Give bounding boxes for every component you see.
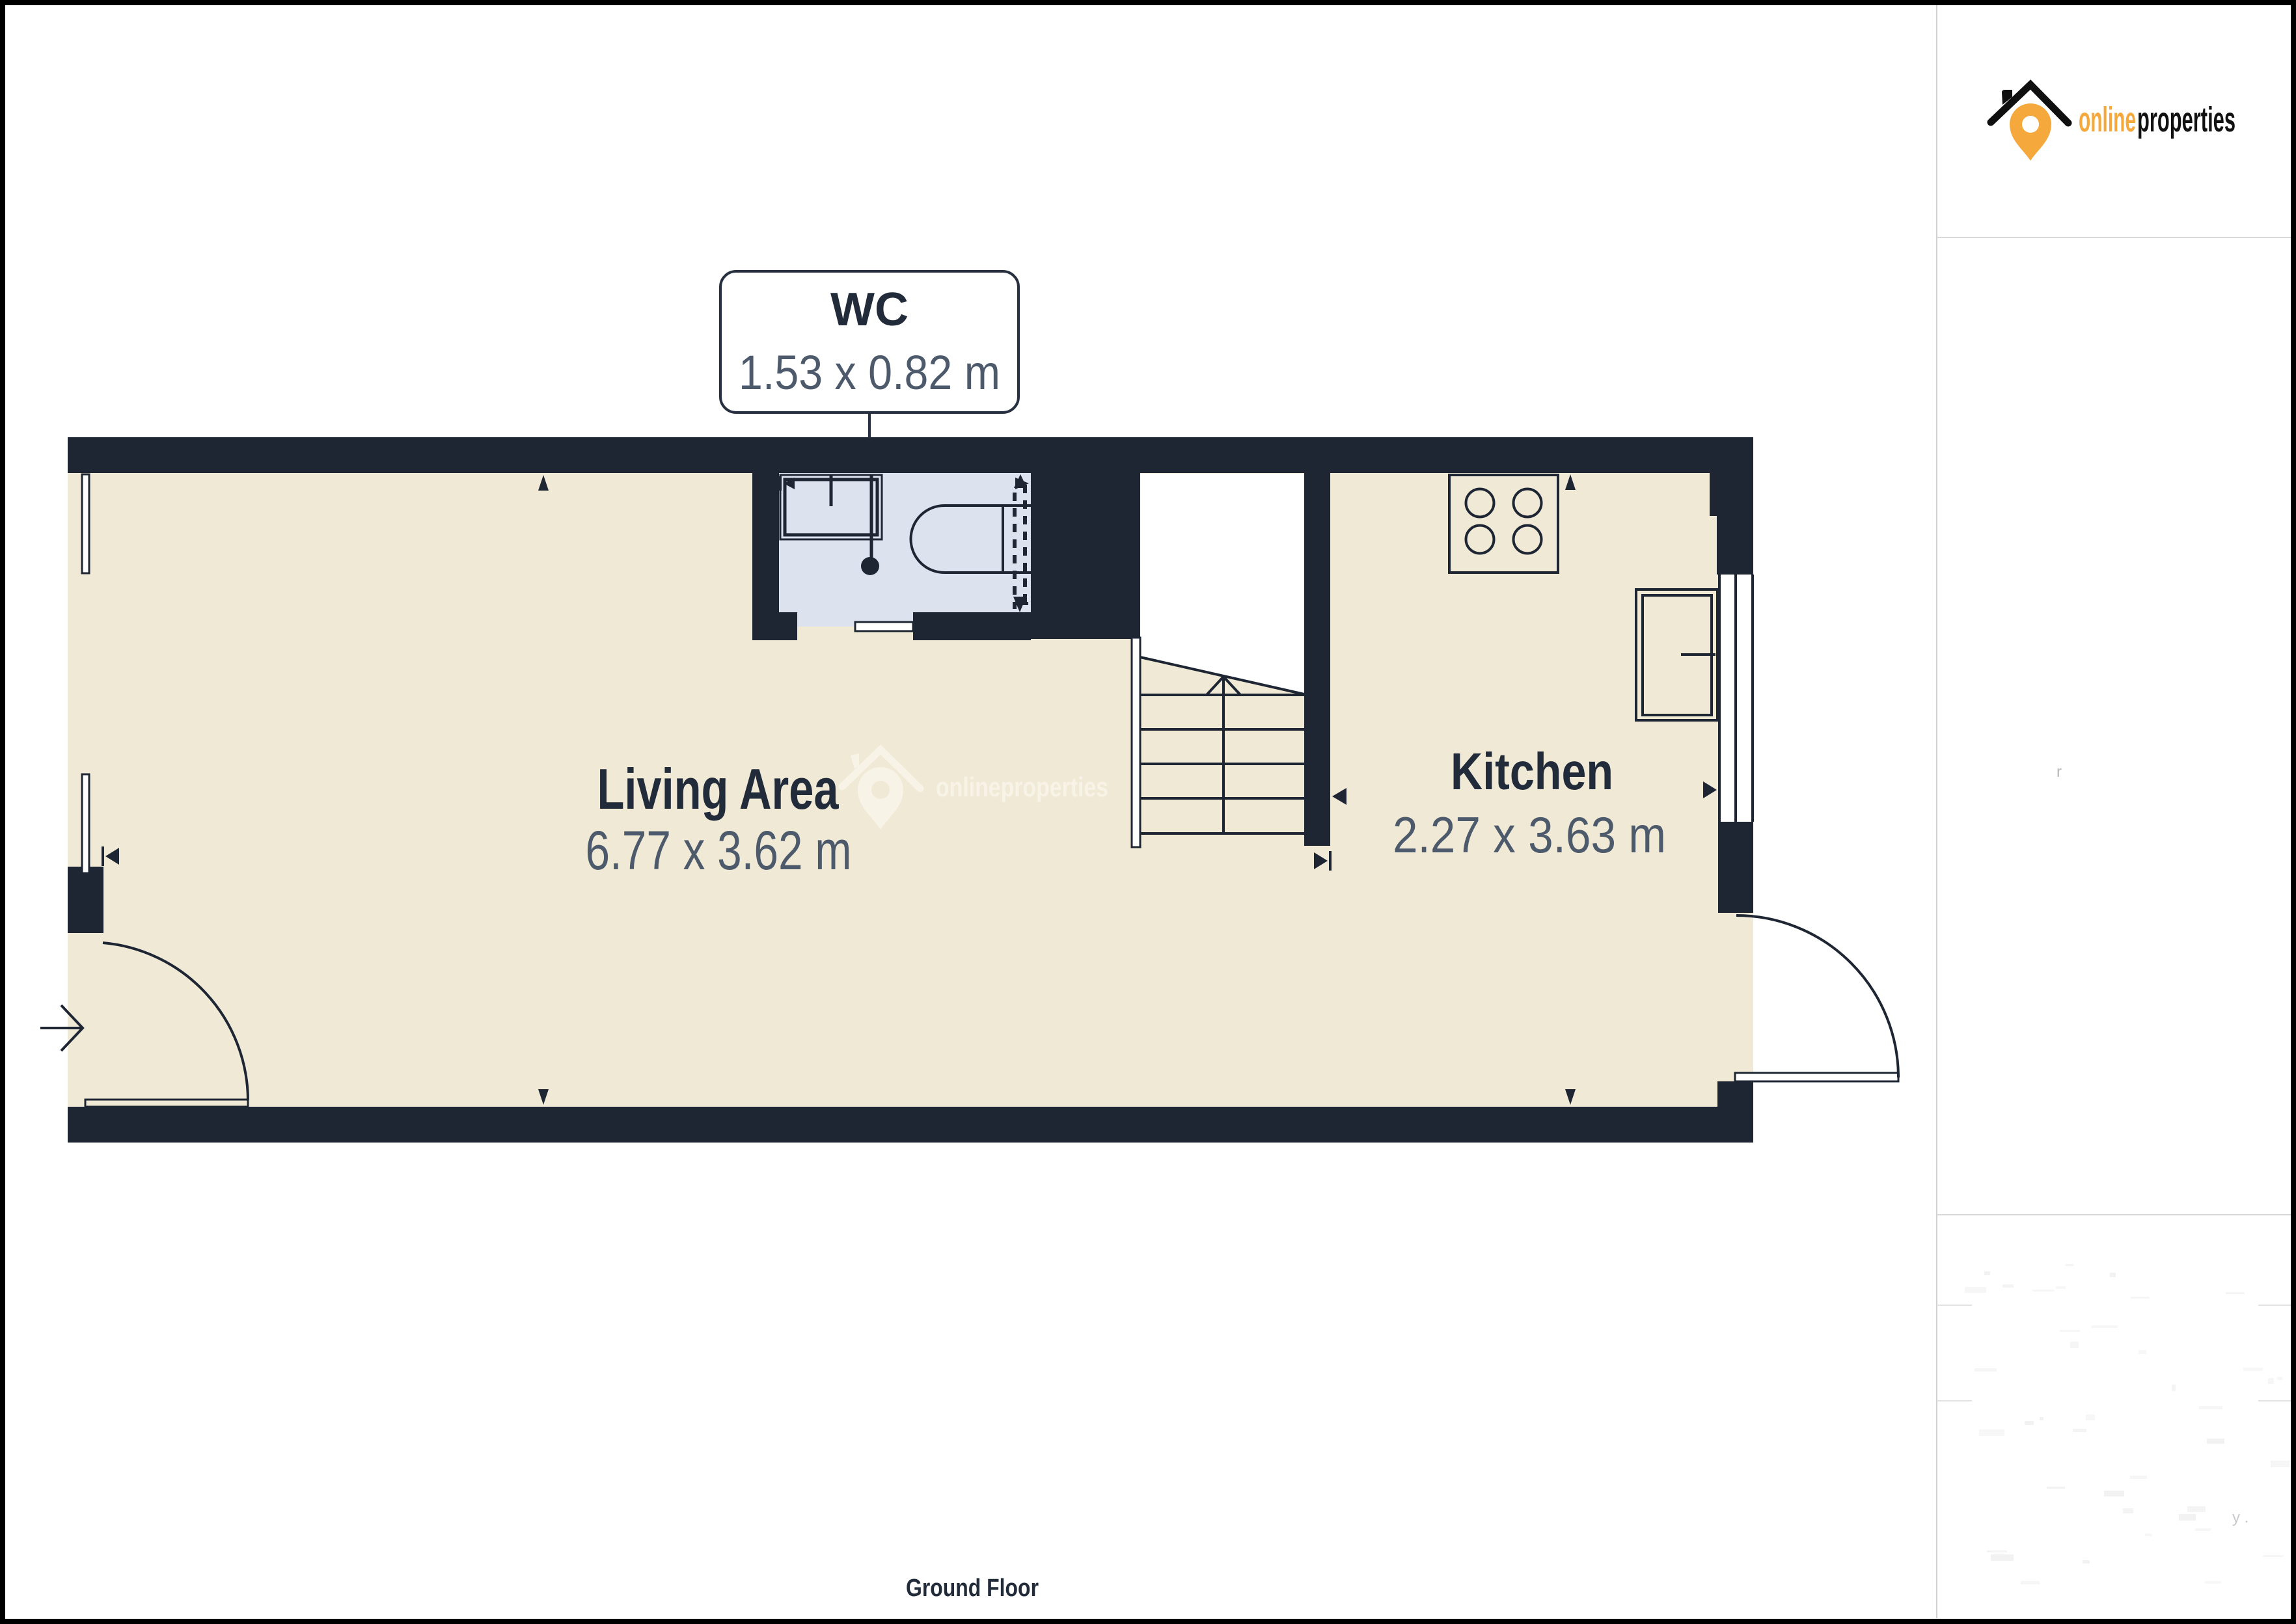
svg-text:Ground Floor: Ground Floor — [906, 1575, 1039, 1602]
svg-text:WC: WC — [830, 284, 909, 336]
svg-text:Living Area: Living Area — [597, 757, 840, 821]
svg-text:r: r — [2057, 763, 2062, 781]
svg-text:6.77 x 3.62 m: 6.77 x 3.62 m — [586, 820, 852, 881]
svg-text:properties: properties — [2137, 100, 2235, 139]
svg-text:onlineproperties: onlineproperties — [936, 772, 1108, 802]
svg-text:1.53 x 0.82 m: 1.53 x 0.82 m — [739, 345, 1000, 399]
svg-text:Kitchen: Kitchen — [1451, 742, 1613, 800]
svg-text:2.27 x 3.63 m: 2.27 x 3.63 m — [1393, 806, 1666, 863]
svg-text:y .: y . — [2232, 1509, 2248, 1526]
svg-text:online: online — [2079, 100, 2136, 139]
